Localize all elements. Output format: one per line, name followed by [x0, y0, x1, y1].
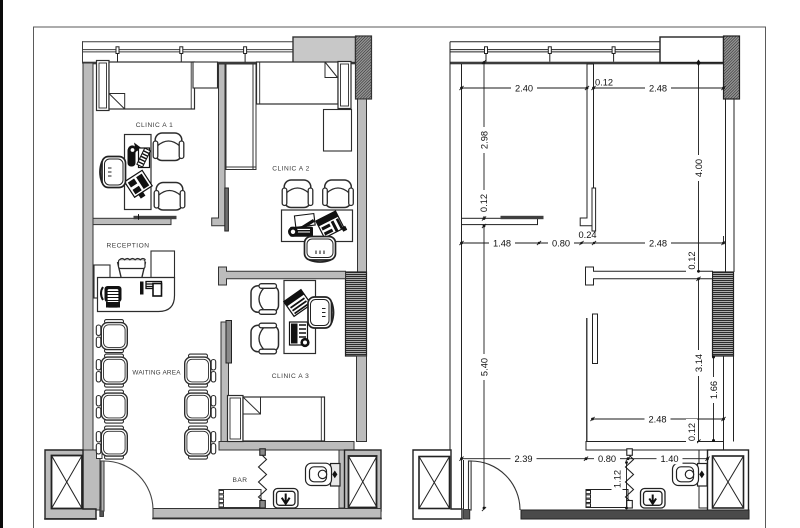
- svg-text:2.40: 2.40: [515, 84, 533, 94]
- svg-text:3.14: 3.14: [694, 354, 704, 372]
- svg-text:0.12: 0.12: [687, 423, 697, 441]
- svg-text:CLINIC A 3: CLINIC A 3: [272, 373, 310, 380]
- svg-text:WAITING AREA: WAITING AREA: [132, 370, 181, 377]
- svg-text:1.12: 1.12: [613, 470, 623, 488]
- svg-text:0.12: 0.12: [687, 251, 697, 269]
- svg-text:0.80: 0.80: [598, 454, 616, 464]
- svg-text:2.39: 2.39: [514, 454, 532, 464]
- svg-text:5.40: 5.40: [480, 358, 490, 376]
- svg-text:2.48: 2.48: [648, 415, 666, 425]
- svg-text:0.24: 0.24: [578, 230, 596, 240]
- svg-text:0.12: 0.12: [479, 194, 489, 212]
- svg-text:CLINIC A 2: CLINIC A 2: [272, 166, 310, 173]
- svg-text:1.48: 1.48: [493, 239, 511, 249]
- svg-text:2.48: 2.48: [649, 239, 667, 249]
- svg-text:0.80: 0.80: [552, 239, 570, 249]
- svg-text:RECEPTION: RECEPTION: [107, 243, 150, 250]
- svg-text:1.66: 1.66: [709, 381, 719, 399]
- svg-text:1.40: 1.40: [660, 454, 678, 464]
- svg-text:2.48: 2.48: [649, 84, 667, 94]
- svg-text:4.00: 4.00: [694, 159, 704, 177]
- svg-text:CLINIC A 1: CLINIC A 1: [136, 122, 174, 129]
- svg-text:2.98: 2.98: [480, 131, 490, 149]
- svg-text:BAR: BAR: [232, 477, 247, 484]
- svg-text:0.12: 0.12: [595, 78, 613, 88]
